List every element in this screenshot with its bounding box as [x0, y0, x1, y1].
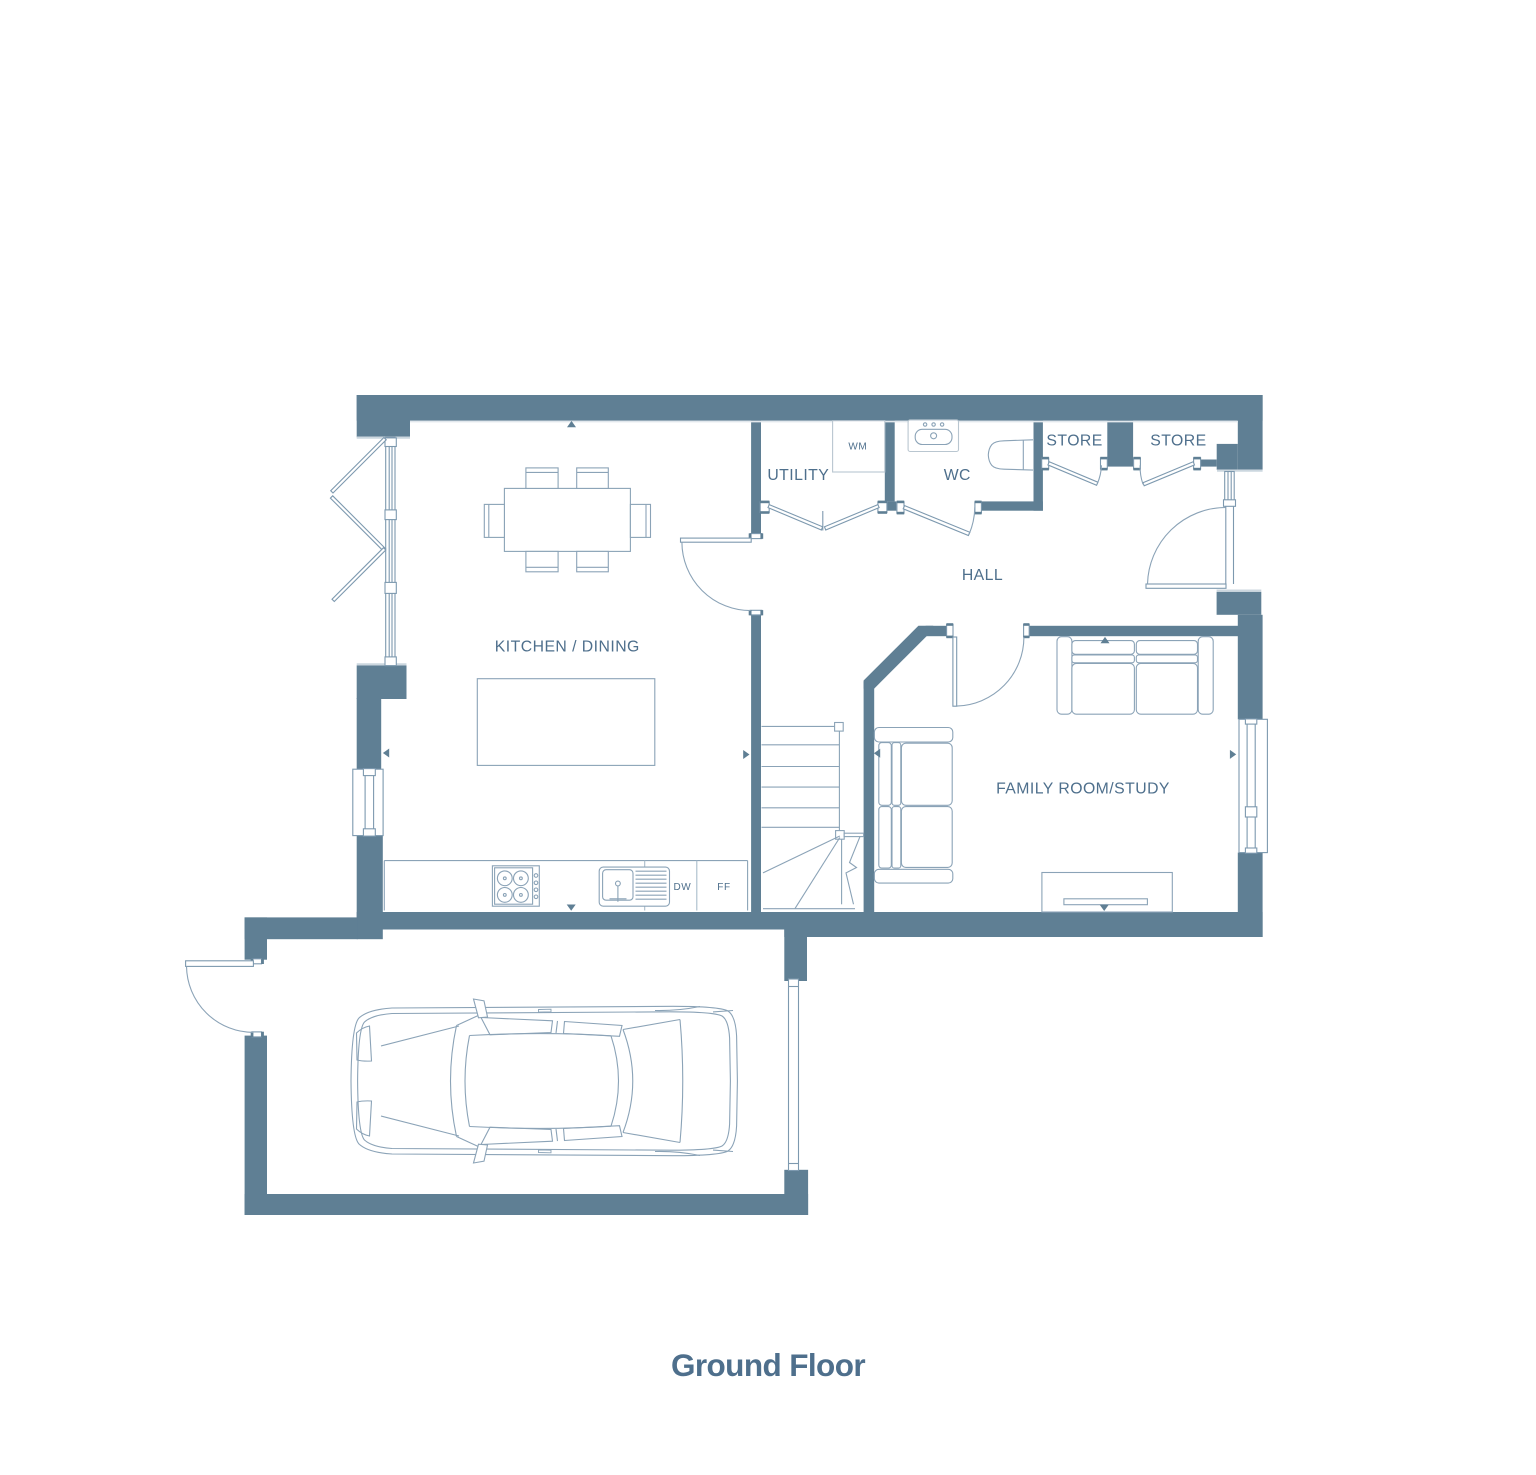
svg-text:Ground Floor: Ground Floor	[671, 1347, 865, 1383]
svg-text:STORE: STORE	[1150, 432, 1206, 449]
svg-text:HALL: HALL	[962, 567, 1003, 584]
svg-text:FAMILY ROOM/STUDY: FAMILY ROOM/STUDY	[996, 780, 1170, 797]
svg-text:KITCHEN / DINING: KITCHEN / DINING	[495, 638, 640, 655]
svg-text:STORE: STORE	[1046, 432, 1102, 449]
svg-text:WM: WM	[848, 442, 867, 453]
svg-text:FF: FF	[717, 882, 730, 893]
svg-text:WC: WC	[944, 467, 971, 484]
svg-text:DW: DW	[673, 882, 691, 893]
svg-text:UTILITY: UTILITY	[767, 467, 829, 484]
